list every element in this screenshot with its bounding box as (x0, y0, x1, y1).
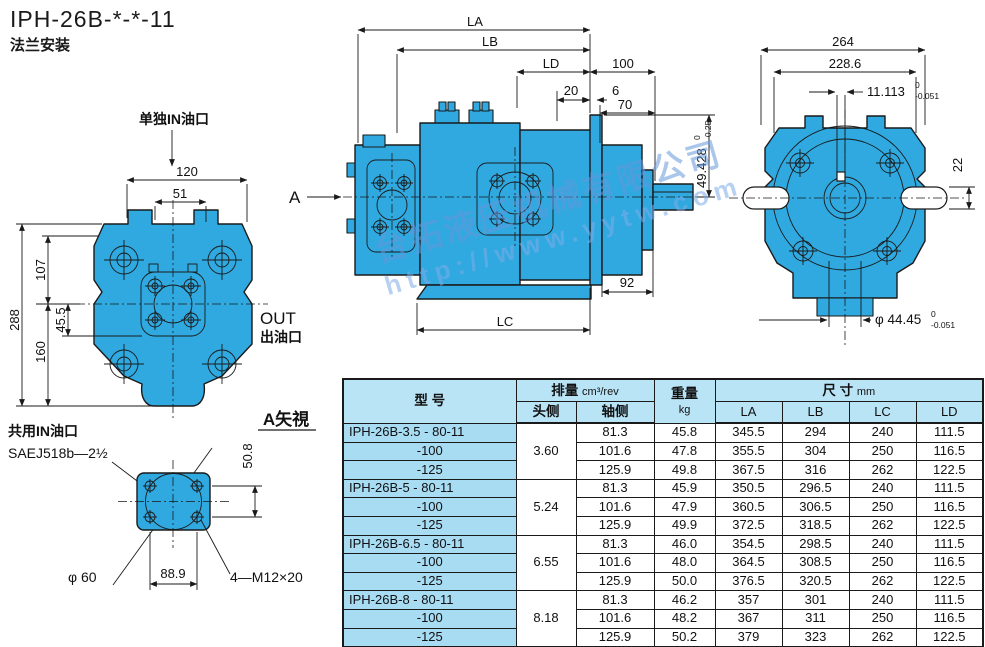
col-header-head-side: 头侧 (516, 402, 576, 424)
la-cell: 379 (715, 628, 782, 647)
dim-ld: LD (543, 56, 560, 71)
dim-20: 20 (564, 83, 578, 98)
lc-cell: 250 (849, 498, 916, 517)
sae-flange-label: SAEJ518b—2½ (8, 445, 108, 461)
ld-cell: 111.5 (916, 591, 983, 610)
table-row: -100101.647.9360.5306.5250116.5 (343, 498, 983, 517)
lc-cell: 262 (849, 516, 916, 535)
weight-cell: 49.9 (654, 516, 715, 535)
shaft-side-cell: 125.9 (576, 516, 654, 535)
shaft-side-cell: 125.9 (576, 628, 654, 647)
dim-88-9: 88.9 (160, 566, 185, 581)
lb-cell: 296.5 (782, 479, 849, 498)
model-cell: -125 (343, 516, 516, 535)
shaft-side-cell: 101.6 (576, 554, 654, 573)
lb-cell: 294 (782, 423, 849, 442)
section-a-label: A (289, 188, 301, 207)
table-row: IPH-26B-6.5 - 80-116.5581.346.0354.5298.… (343, 535, 983, 554)
dim-51: 51 (173, 186, 187, 201)
dim-dia-44-45: φ 44.45 (875, 312, 921, 327)
la-cell: 357 (715, 591, 782, 610)
ld-cell: 111.5 (916, 423, 983, 442)
shaft-side-cell: 101.6 (576, 442, 654, 461)
rear-view-drawing: 264 228.6 11.113 0 -0.051 22 φ 44.45 0 -… (715, 15, 985, 370)
ld-cell: 111.5 (916, 535, 983, 554)
weight-cell: 48.0 (654, 554, 715, 573)
dim-lc: LC (497, 314, 514, 329)
lc-cell: 240 (849, 591, 916, 610)
model-cell: -125 (343, 461, 516, 480)
dim-70: 70 (618, 97, 632, 112)
la-cell: 367 (715, 609, 782, 628)
head-side-cell: 6.55 (516, 535, 576, 591)
side-view-drawing: A LA LB LD 100 20 6 (285, 5, 730, 377)
page-subtitle: 法兰安装 (10, 34, 70, 55)
table-row: -125125.949.8367.5316262122.5 (343, 461, 983, 480)
table-row: -125125.949.9372.5318.5262122.5 (343, 516, 983, 535)
model-cell: IPH-26B-6.5 - 80-11 (343, 535, 516, 554)
front-port-label: 单独IN油口 (139, 111, 209, 127)
shaft-side-cell: 101.6 (576, 609, 654, 628)
ld-cell: 116.5 (916, 498, 983, 517)
shaft-side-cell: 81.3 (576, 591, 654, 610)
shaft-side-cell: 125.9 (576, 461, 654, 480)
model-cell: IPH-26B-8 - 80-11 (343, 591, 516, 610)
bolt-spec-label: 4—M12×20 (230, 569, 303, 585)
table-row: -100101.648.0364.5308.5250116.5 (343, 554, 983, 573)
dim-120: 120 (176, 164, 198, 179)
dim-264: 264 (832, 34, 854, 49)
dim-49-428-sup: 0 (692, 135, 702, 140)
dim-228-6: 228.6 (829, 56, 862, 71)
dim-22: 22 (950, 158, 965, 172)
table-row: -125125.950.0376.5320.5262122.5 (343, 572, 983, 591)
table-row: -100101.647.8355.5304250116.5 (343, 442, 983, 461)
la-cell: 360.5 (715, 498, 782, 517)
dim-100: 100 (612, 56, 634, 71)
col-header-weight: 重量kg (654, 379, 715, 423)
size-unit: mm (857, 386, 875, 398)
a-view-drawing: A矢視 共用IN油口 SAEJ518b—2½ 50.8 8 (0, 408, 340, 647)
la-cell: 376.5 (715, 572, 782, 591)
weight-cell: 45.8 (654, 423, 715, 442)
shaft-side-cell: 81.3 (576, 479, 654, 498)
weight-cell: 47.8 (654, 442, 715, 461)
weight-cell: 49.8 (654, 461, 715, 480)
page-title: IPH-26B-*-*-11 (10, 6, 176, 33)
dim-6: 6 (612, 83, 619, 98)
model-cell: IPH-26B-5 - 80-11 (343, 479, 516, 498)
table-row: IPH-26B-5 - 80-115.2481.345.9350.5296.52… (343, 479, 983, 498)
shaft-side-cell: 81.3 (576, 535, 654, 554)
dim-49-428-sub: -0.25 (703, 120, 713, 140)
ld-cell: 116.5 (916, 554, 983, 573)
dim-lb: LB (482, 34, 498, 49)
weight-cell: 50.0 (654, 572, 715, 591)
displacement-unit: cm³/rev (582, 386, 619, 398)
lc-cell: 262 (849, 461, 916, 480)
col-header-lc: LC (849, 402, 916, 424)
dim-288: 288 (7, 309, 22, 331)
model-cell: -125 (343, 572, 516, 591)
a-view-body (113, 448, 232, 585)
col-header-shaft-side: 轴侧 (576, 402, 654, 424)
weight-cell: 46.0 (654, 535, 715, 554)
la-cell: 350.5 (715, 479, 782, 498)
lc-cell: 240 (849, 535, 916, 554)
lc-cell: 240 (849, 423, 916, 442)
ld-cell: 111.5 (916, 479, 983, 498)
shared-in-port-label: 共用IN油口 (8, 423, 78, 439)
lc-cell: 250 (849, 609, 916, 628)
dim-49-428: 49.428 (694, 148, 709, 188)
weight-unit: kg (679, 404, 691, 416)
side-view-body (343, 102, 713, 299)
lb-cell: 320.5 (782, 572, 849, 591)
weight-label: 重量 (671, 386, 698, 401)
la-cell: 364.5 (715, 554, 782, 573)
spec-table-body: IPH-26B-3.5 - 80-113.6081.345.8345.52942… (343, 423, 983, 647)
head-side-cell: 5.24 (516, 479, 576, 535)
lb-cell: 323 (782, 628, 849, 647)
lb-cell: 311 (782, 609, 849, 628)
shaft-side-cell: 101.6 (576, 498, 654, 517)
ld-cell: 116.5 (916, 442, 983, 461)
model-cell: -100 (343, 442, 516, 461)
ld-cell: 122.5 (916, 572, 983, 591)
dim-dia-60: φ 60 (68, 569, 97, 585)
col-header-model: 型 号 (343, 379, 516, 423)
dim-92: 92 (620, 275, 634, 290)
ld-cell: 116.5 (916, 609, 983, 628)
ld-cell: 122.5 (916, 628, 983, 647)
shaft-side-cell: 125.9 (576, 572, 654, 591)
weight-cell: 48.2 (654, 609, 715, 628)
lb-cell: 316 (782, 461, 849, 480)
weight-cell: 45.9 (654, 479, 715, 498)
lc-cell: 250 (849, 554, 916, 573)
ld-cell: 122.5 (916, 461, 983, 480)
la-cell: 354.5 (715, 535, 782, 554)
dim-50-8: 50.8 (240, 443, 255, 468)
dim-dia-44-45-sub: -0.051 (931, 320, 955, 330)
model-cell: -100 (343, 554, 516, 573)
dim-11-113-sup: 0 (915, 80, 920, 90)
dim-la: LA (467, 14, 483, 29)
dim-45-5: 45.5 (53, 307, 68, 332)
lb-cell: 304 (782, 442, 849, 461)
la-cell: 345.5 (715, 423, 782, 442)
lb-cell: 298.5 (782, 535, 849, 554)
dim-dia-44-45-sup: 0 (931, 309, 936, 319)
head-side-cell: 3.60 (516, 423, 576, 479)
la-cell: 367.5 (715, 461, 782, 480)
lb-cell: 318.5 (782, 516, 849, 535)
spec-table-header: 型 号 排量 cm³/rev 重量kg 尺 寸 mm 头侧 轴侧 LA LB L… (343, 379, 983, 423)
spec-table: 型 号 排量 cm³/rev 重量kg 尺 寸 mm 头侧 轴侧 LA LB L… (342, 378, 984, 647)
lc-cell: 240 (849, 479, 916, 498)
lc-cell: 262 (849, 572, 916, 591)
dim-160: 160 (33, 341, 48, 363)
displacement-label: 排量 (551, 383, 578, 398)
col-header-size: 尺 寸 mm (715, 379, 983, 402)
table-row: IPH-26B-8 - 80-118.1881.346.235730124011… (343, 591, 983, 610)
lc-cell: 250 (849, 442, 916, 461)
ld-cell: 122.5 (916, 516, 983, 535)
lb-cell: 301 (782, 591, 849, 610)
col-header-displacement: 排量 cm³/rev (516, 379, 654, 402)
model-cell: -100 (343, 498, 516, 517)
col-header-lb: LB (782, 402, 849, 424)
table-row: -125125.950.2379323262122.5 (343, 628, 983, 647)
col-header-la: LA (715, 402, 782, 424)
dim-11-113-sub: -0.051 (915, 91, 939, 101)
dim-107: 107 (33, 259, 48, 281)
model-cell: -125 (343, 628, 516, 647)
weight-cell: 50.2 (654, 628, 715, 647)
model-cell: IPH-26B-3.5 - 80-11 (343, 423, 516, 442)
lb-cell: 306.5 (782, 498, 849, 517)
spec-table-container: 型 号 排量 cm³/rev 重量kg 尺 寸 mm 头侧 轴侧 LA LB L… (342, 378, 984, 647)
size-label: 尺 寸 (822, 383, 853, 398)
la-cell: 355.5 (715, 442, 782, 461)
col-header-ld: LD (916, 402, 983, 424)
a-view-title: A矢視 (263, 409, 309, 429)
front-view-body (76, 200, 268, 420)
table-row: IPH-26B-3.5 - 80-113.6081.345.8345.52942… (343, 423, 983, 442)
datasheet-page: IPH-26B-*-*-11 法兰安装 (0, 0, 985, 647)
shaft-side-cell: 81.3 (576, 423, 654, 442)
lc-cell: 262 (849, 628, 916, 647)
weight-cell: 46.2 (654, 591, 715, 610)
la-cell: 372.5 (715, 516, 782, 535)
table-row: -100101.648.2367311250116.5 (343, 609, 983, 628)
dim-11-113: 11.113 (867, 84, 905, 99)
head-side-cell: 8.18 (516, 591, 576, 647)
model-cell: -100 (343, 609, 516, 628)
lb-cell: 308.5 (782, 554, 849, 573)
weight-cell: 47.9 (654, 498, 715, 517)
